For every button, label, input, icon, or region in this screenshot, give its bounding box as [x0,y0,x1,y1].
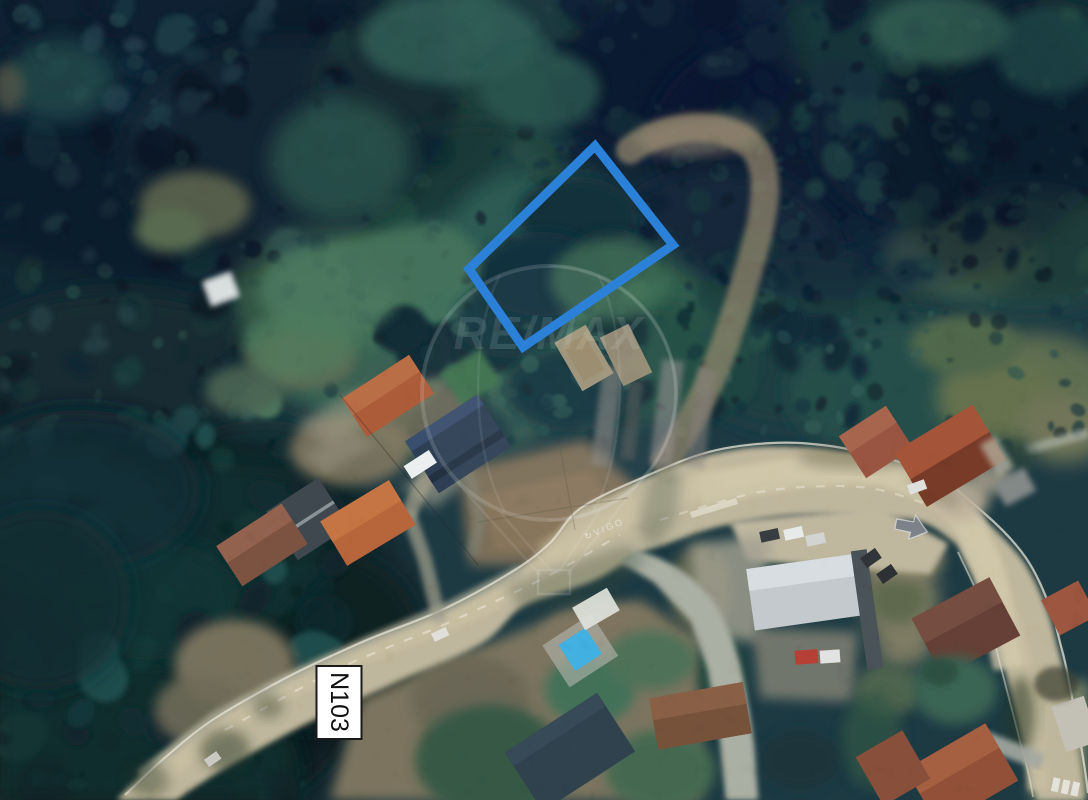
svg-text:N103: N103 [325,672,353,732]
